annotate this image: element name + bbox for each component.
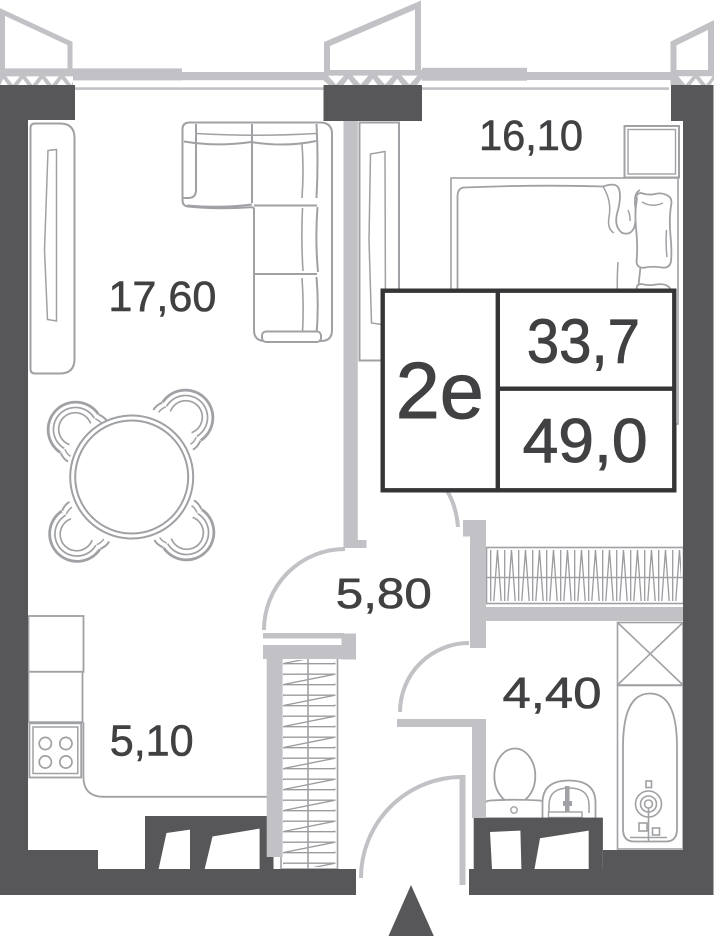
svg-text:5,80: 5,80	[336, 570, 432, 618]
svg-text:16,10: 16,10	[479, 112, 583, 160]
svg-text:17,60: 17,60	[108, 273, 216, 321]
svg-text:2е: 2е	[396, 346, 484, 435]
svg-text:33,7: 33,7	[527, 307, 640, 376]
svg-text:4,40: 4,40	[503, 669, 602, 718]
svg-text:5,10: 5,10	[110, 717, 194, 766]
svg-text:49,0: 49,0	[523, 407, 648, 476]
